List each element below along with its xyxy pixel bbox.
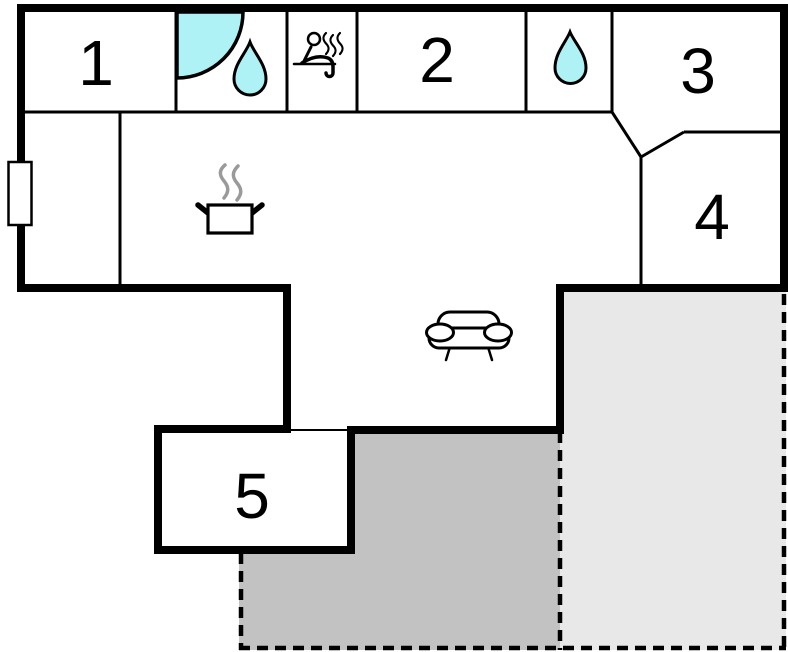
room-2-label: 2 — [419, 24, 455, 96]
room-4-label: 4 — [694, 181, 730, 253]
terrace-open-area — [558, 290, 786, 650]
room-3-label: 3 — [680, 35, 716, 107]
sauna-person-head — [308, 33, 320, 45]
floor-plan: 1 2 3 4 5 — [0, 0, 788, 652]
window — [9, 162, 32, 225]
sofa-arm-left — [427, 324, 454, 341]
room-1-label: 1 — [78, 27, 114, 99]
floor-plan-canvas: 1 2 3 4 5 — [0, 0, 788, 652]
pot-body — [208, 205, 252, 233]
room-5-label: 5 — [234, 460, 270, 532]
sofa-arm-right — [485, 324, 512, 341]
